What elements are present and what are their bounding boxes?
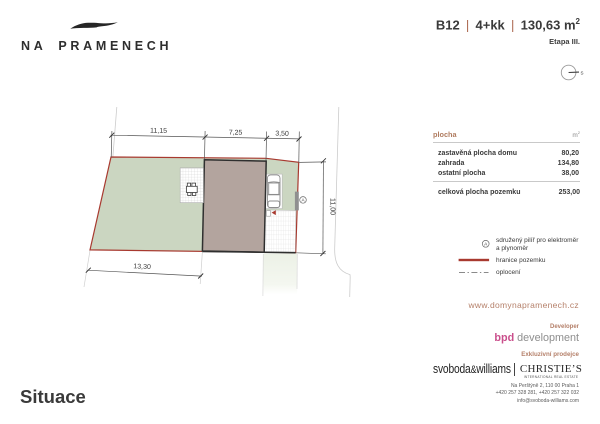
svg-text:11,00: 11,00: [329, 198, 336, 215]
svg-text:7,25: 7,25: [229, 129, 243, 136]
svg-text:3,50: 3,50: [275, 131, 289, 138]
svg-text:11,15: 11,15: [150, 128, 167, 135]
svg-text:13,30: 13,30: [133, 263, 151, 271]
